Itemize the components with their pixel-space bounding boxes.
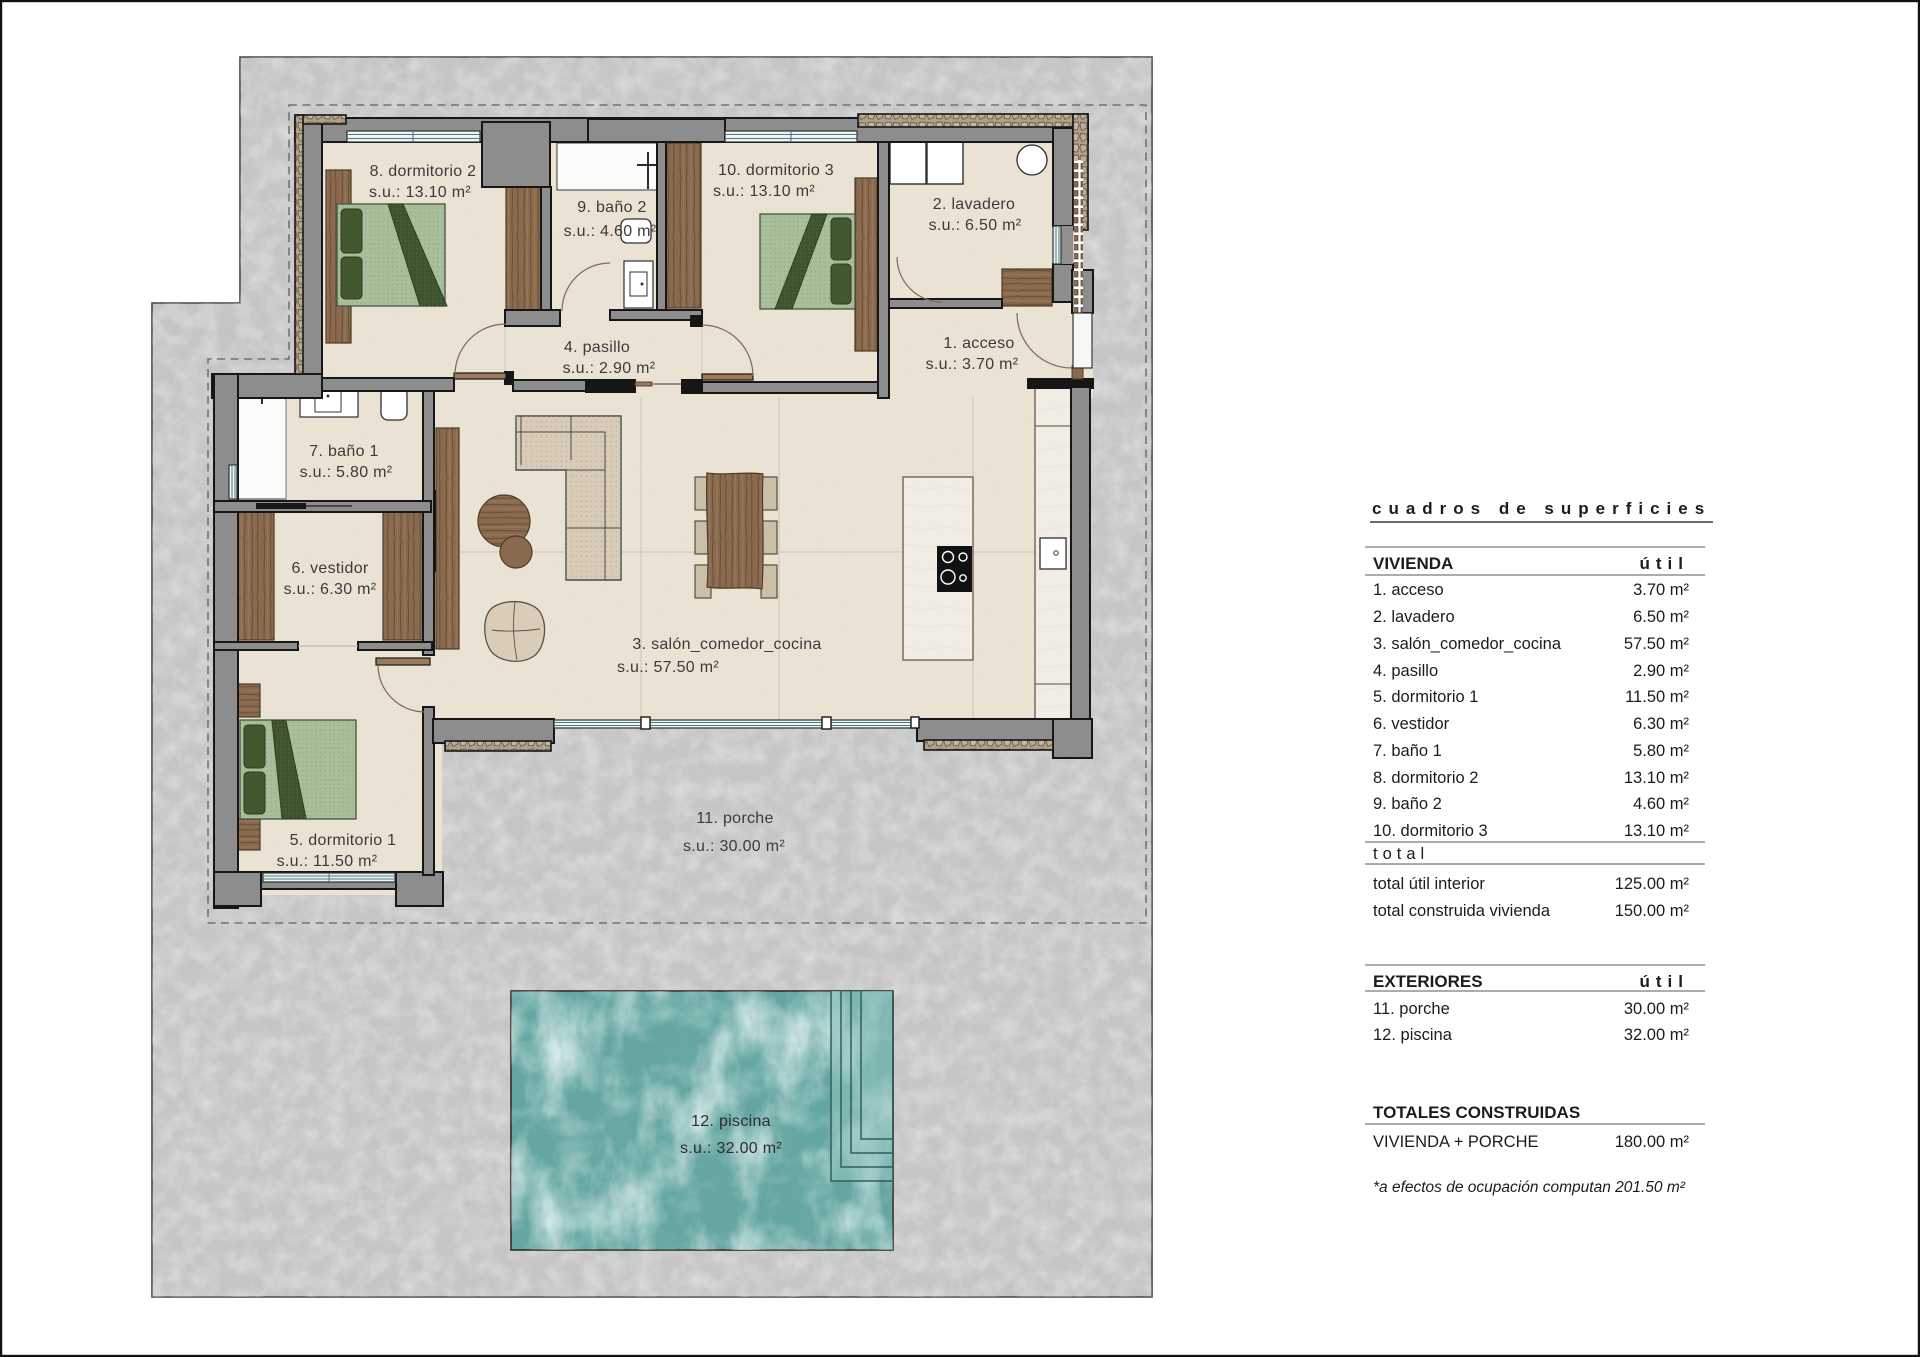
- svg-text:útil: útil: [1640, 554, 1690, 573]
- svg-text:30.00 m²: 30.00 m²: [1624, 1000, 1690, 1018]
- svg-text:9. baño 2: 9. baño 2: [577, 199, 646, 216]
- svg-text:6. vestidor: 6. vestidor: [291, 560, 368, 577]
- svg-text:s.u.: 13.10 m²: s.u.: 13.10 m²: [369, 184, 471, 201]
- svg-text:3. salón_comedor_cocina: 3. salón_comedor_cocina: [1373, 635, 1562, 653]
- svg-text:6.50 m²: 6.50 m²: [1633, 608, 1689, 626]
- svg-text:s.u.: 13.10 m²: s.u.: 13.10 m²: [713, 183, 815, 200]
- svg-text:6.30 m²: 6.30 m²: [1633, 715, 1689, 733]
- svg-text:s.u.: 2.90 m²: s.u.: 2.90 m²: [563, 360, 656, 377]
- svg-text:2. lavadero: 2. lavadero: [1373, 608, 1455, 626]
- svg-text:9. baño 2: 9. baño 2: [1373, 795, 1442, 813]
- svg-text:5. dormitorio 1: 5. dormitorio 1: [1373, 688, 1478, 706]
- svg-text:12. piscina: 12. piscina: [1373, 1026, 1453, 1044]
- svg-text:2.90 m²: 2.90 m²: [1633, 662, 1689, 680]
- svg-text:1. acceso: 1. acceso: [1373, 581, 1444, 599]
- svg-text:11. porche: 11. porche: [1373, 1000, 1450, 1018]
- svg-text:5.80 m²: 5.80 m²: [1633, 742, 1689, 760]
- svg-text:s.u.: 11.50 m²: s.u.: 11.50 m²: [277, 853, 378, 870]
- svg-text:57.50 m²: 57.50 m²: [1624, 635, 1690, 653]
- svg-text:3. salón_comedor_cocina: 3. salón_comedor_cocina: [632, 636, 821, 653]
- svg-text:TOTALES CONSTRUIDAS: TOTALES CONSTRUIDAS: [1373, 1103, 1580, 1122]
- svg-text:11.50 m²: 11.50 m²: [1625, 688, 1689, 706]
- svg-text:s.u.: 57.50 m²: s.u.: 57.50 m²: [617, 659, 719, 676]
- svg-text:s.u.: 6.50 m²: s.u.: 6.50 m²: [929, 217, 1022, 234]
- svg-text:total útil interior: total útil interior: [1373, 875, 1485, 893]
- svg-text:8. dormitorio 2: 8. dormitorio 2: [370, 163, 477, 180]
- svg-text:s.u.: 32.00 m²: s.u.: 32.00 m²: [680, 1140, 782, 1157]
- svg-text:s.u.: 3.70 m²: s.u.: 3.70 m²: [926, 356, 1019, 373]
- svg-text:12. piscina: 12. piscina: [691, 1113, 771, 1130]
- svg-text:4.60 m²: 4.60 m²: [1633, 795, 1689, 813]
- svg-text:4. pasillo: 4. pasillo: [1373, 662, 1438, 680]
- svg-text:VIVIENDA + PORCHE: VIVIENDA + PORCHE: [1373, 1133, 1539, 1151]
- svg-text:VIVIENDA: VIVIENDA: [1373, 554, 1453, 573]
- svg-text:13.10 m²: 13.10 m²: [1624, 822, 1690, 840]
- svg-text:EXTERIORES: EXTERIORES: [1373, 972, 1483, 991]
- svg-text:6. vestidor: 6. vestidor: [1373, 715, 1450, 733]
- svg-text:150.00 m²: 150.00 m²: [1615, 902, 1690, 920]
- svg-text:total construida vivienda: total construida vivienda: [1373, 902, 1551, 920]
- svg-text:13.10 m²: 13.10 m²: [1624, 769, 1690, 787]
- svg-text:7. baño 1: 7. baño 1: [1373, 742, 1442, 760]
- svg-text:32.00 m²: 32.00 m²: [1624, 1026, 1690, 1044]
- svg-text:s.u.: 6.30 m²: s.u.: 6.30 m²: [284, 581, 377, 598]
- svg-text:125.00 m²: 125.00 m²: [1615, 875, 1690, 893]
- svg-text:total: total: [1373, 845, 1429, 863]
- svg-text:s.u.: 5.80 m²: s.u.: 5.80 m²: [300, 464, 393, 481]
- svg-text:s.u.: 30.00 m²: s.u.: 30.00 m²: [683, 838, 785, 855]
- svg-text:11. porche: 11. porche: [696, 810, 773, 827]
- svg-text:10. dormitorio 3: 10. dormitorio 3: [718, 162, 834, 179]
- svg-text:cuadros de superficies: cuadros de superficies: [1372, 499, 1711, 518]
- svg-text:5. dormitorio 1: 5. dormitorio 1: [290, 832, 397, 849]
- svg-text:10. dormitorio 3: 10. dormitorio 3: [1373, 822, 1488, 840]
- svg-text:7. baño 1: 7. baño 1: [309, 443, 378, 460]
- svg-text:1. acceso: 1. acceso: [943, 335, 1014, 352]
- svg-text:*a efectos de ocupación comput: *a efectos de ocupación computan 201.50 …: [1373, 1179, 1686, 1196]
- svg-text:útil: útil: [1640, 972, 1690, 991]
- svg-text:180.00 m²: 180.00 m²: [1615, 1133, 1690, 1151]
- svg-text:2. lavadero: 2. lavadero: [933, 196, 1015, 213]
- svg-text:3.70 m²: 3.70 m²: [1633, 581, 1689, 599]
- svg-text:s.u.: 4.60 m²: s.u.: 4.60 m²: [564, 223, 657, 240]
- svg-text:4. pasillo: 4. pasillo: [564, 339, 630, 356]
- svg-text:8. dormitorio 2: 8. dormitorio 2: [1373, 769, 1478, 787]
